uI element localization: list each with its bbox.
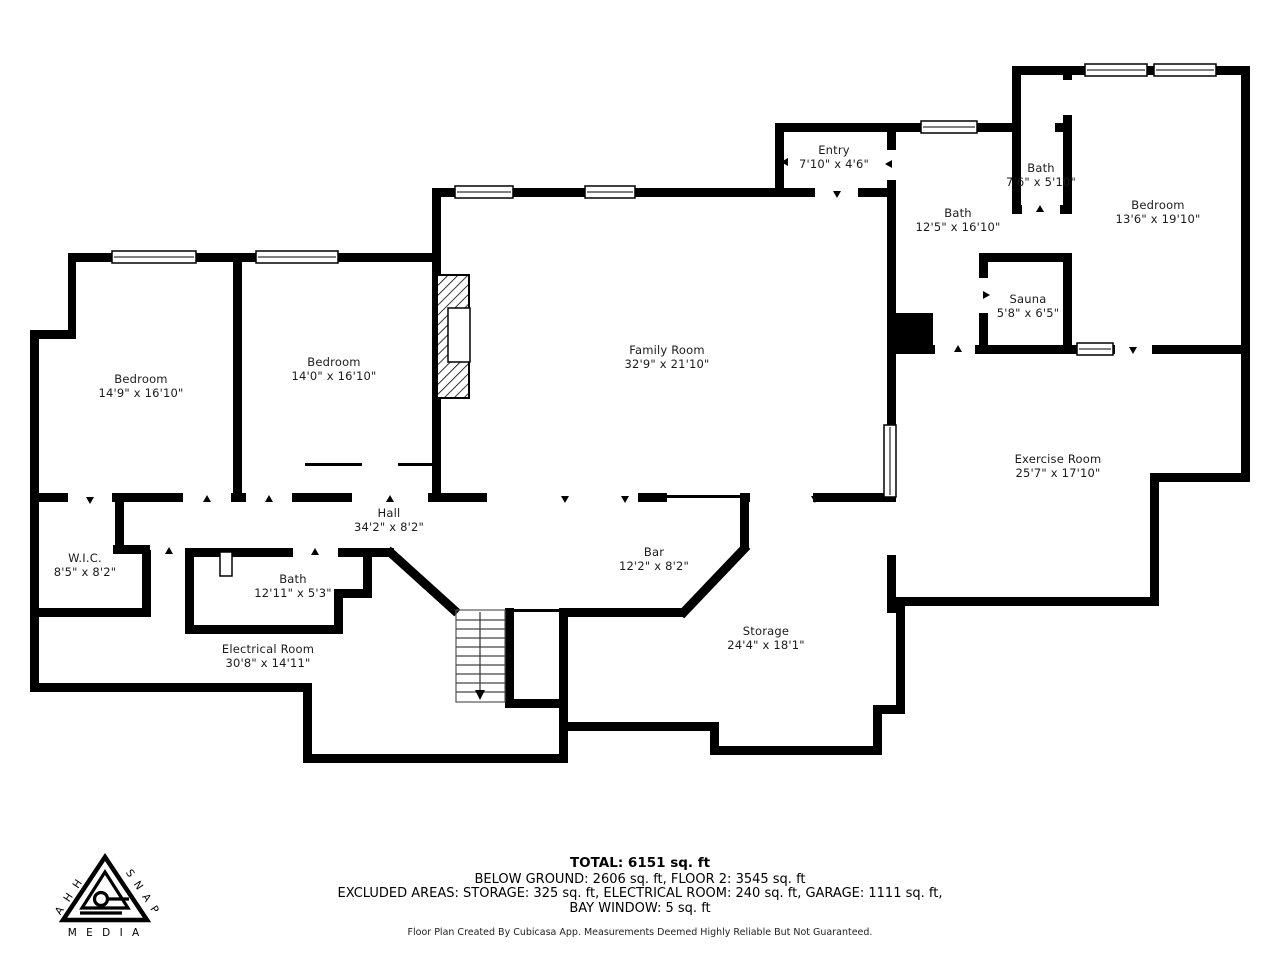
room-label-entry: Entry 7'10" x 4'6" [799,144,869,172]
room-label-family-room: Family Room 32'9" x 21'10" [624,344,709,372]
room-label-exercise-room: Exercise Room 25'7" x 17'10" [1015,453,1102,481]
disclaimer-text: Floor Plan Created By Cubicasa App. Meas… [0,927,1280,938]
floor-areas-text: BELOW GROUND: 2606 sq. ft, FLOOR 2: 3545… [0,872,1280,887]
stairs-down-arrow [475,690,485,700]
room-label-bar: Bar 12'2" x 8'2" [619,546,689,574]
room-label-bath-main: Bath 12'5" x 16'10" [915,207,1000,235]
total-area-text: TOTAL: 6151 sq. ft [0,855,1280,871]
excluded-areas-text-2: BAY WINDOW: 5 sq. ft [0,901,1280,916]
room-label-sauna: Sauna 5'8" x 6'5" [997,293,1060,321]
diagonal-walls [391,549,744,612]
fireplace [437,275,470,398]
room-label-bath-small: Bath 7'6" x 5'10" [1006,162,1076,190]
room-label-bedroom-left: Bedroom 14'9" x 16'10" [98,373,183,401]
room-label-wic: W.I.C. 8'5" x 8'2" [54,552,117,580]
window-midlines [114,70,1214,495]
room-label-hall: Hall 34'2" x 8'2" [354,507,424,535]
room-label-bedroom-top-right: Bedroom 13'6" x 19'10" [1115,199,1200,227]
staircase [456,610,505,702]
room-label-bedroom-mid: Bedroom 14'0" x 16'10" [291,356,376,384]
room-label-storage: Storage 24'4" x 18'1" [727,625,805,653]
room-label-bath-lower: Bath 12'11" x 5'3" [254,573,332,601]
excluded-areas-text: EXCLUDED AREAS: STORAGE: 325 sq. ft, ELE… [0,886,1280,901]
floor-plan-page: A H H S N A P M E D I A Entry 7'10" x 4'… [0,0,1280,960]
room-label-electrical-room: Electrical Room 30'8" x 14'11" [222,643,314,671]
